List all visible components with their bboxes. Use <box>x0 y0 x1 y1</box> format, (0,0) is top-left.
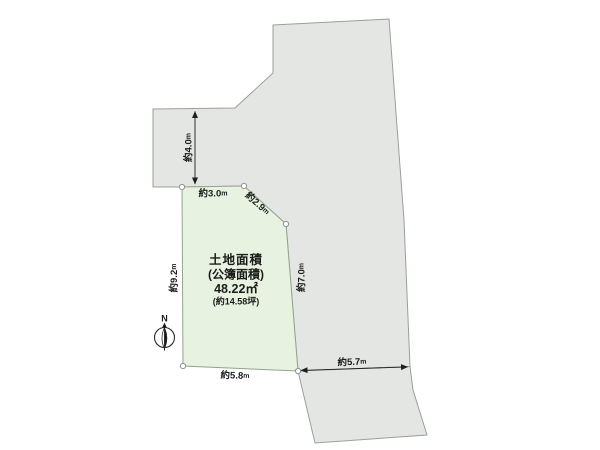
north-label: N <box>161 314 168 324</box>
area-subtitle: (公簿面積) <box>208 267 264 282</box>
vertex-top-right <box>241 183 246 188</box>
area-tsubo-value: (約14.58坪) <box>213 296 260 307</box>
dim-left-edge: 約9.2m <box>168 264 180 293</box>
vertex-corner-cut <box>283 221 288 226</box>
vertex-bottom-right <box>295 368 300 373</box>
area-text-block: 土地面積 (公簿面積) 48.22㎡ (約14.58坪) <box>208 252 264 307</box>
plot-svg: 約4.0m 約3.0m 約2.9m 約9.2m 約7.0m 約5.8m 約5.7… <box>0 0 600 450</box>
dim-bottom-edge: 約5.8m <box>220 368 249 381</box>
area-title: 土地面積 <box>209 252 263 267</box>
vertex-bottom-left <box>180 363 185 368</box>
north-compass: N <box>155 314 175 351</box>
land-plot-diagram: 約4.0m 約3.0m 約2.9m 約9.2m 約7.0m 約5.8m 約5.7… <box>0 0 600 450</box>
vertex-top-left <box>179 184 184 189</box>
area-value: 48.22㎡ <box>214 281 258 296</box>
neighbor-area-south-road <box>298 367 427 444</box>
